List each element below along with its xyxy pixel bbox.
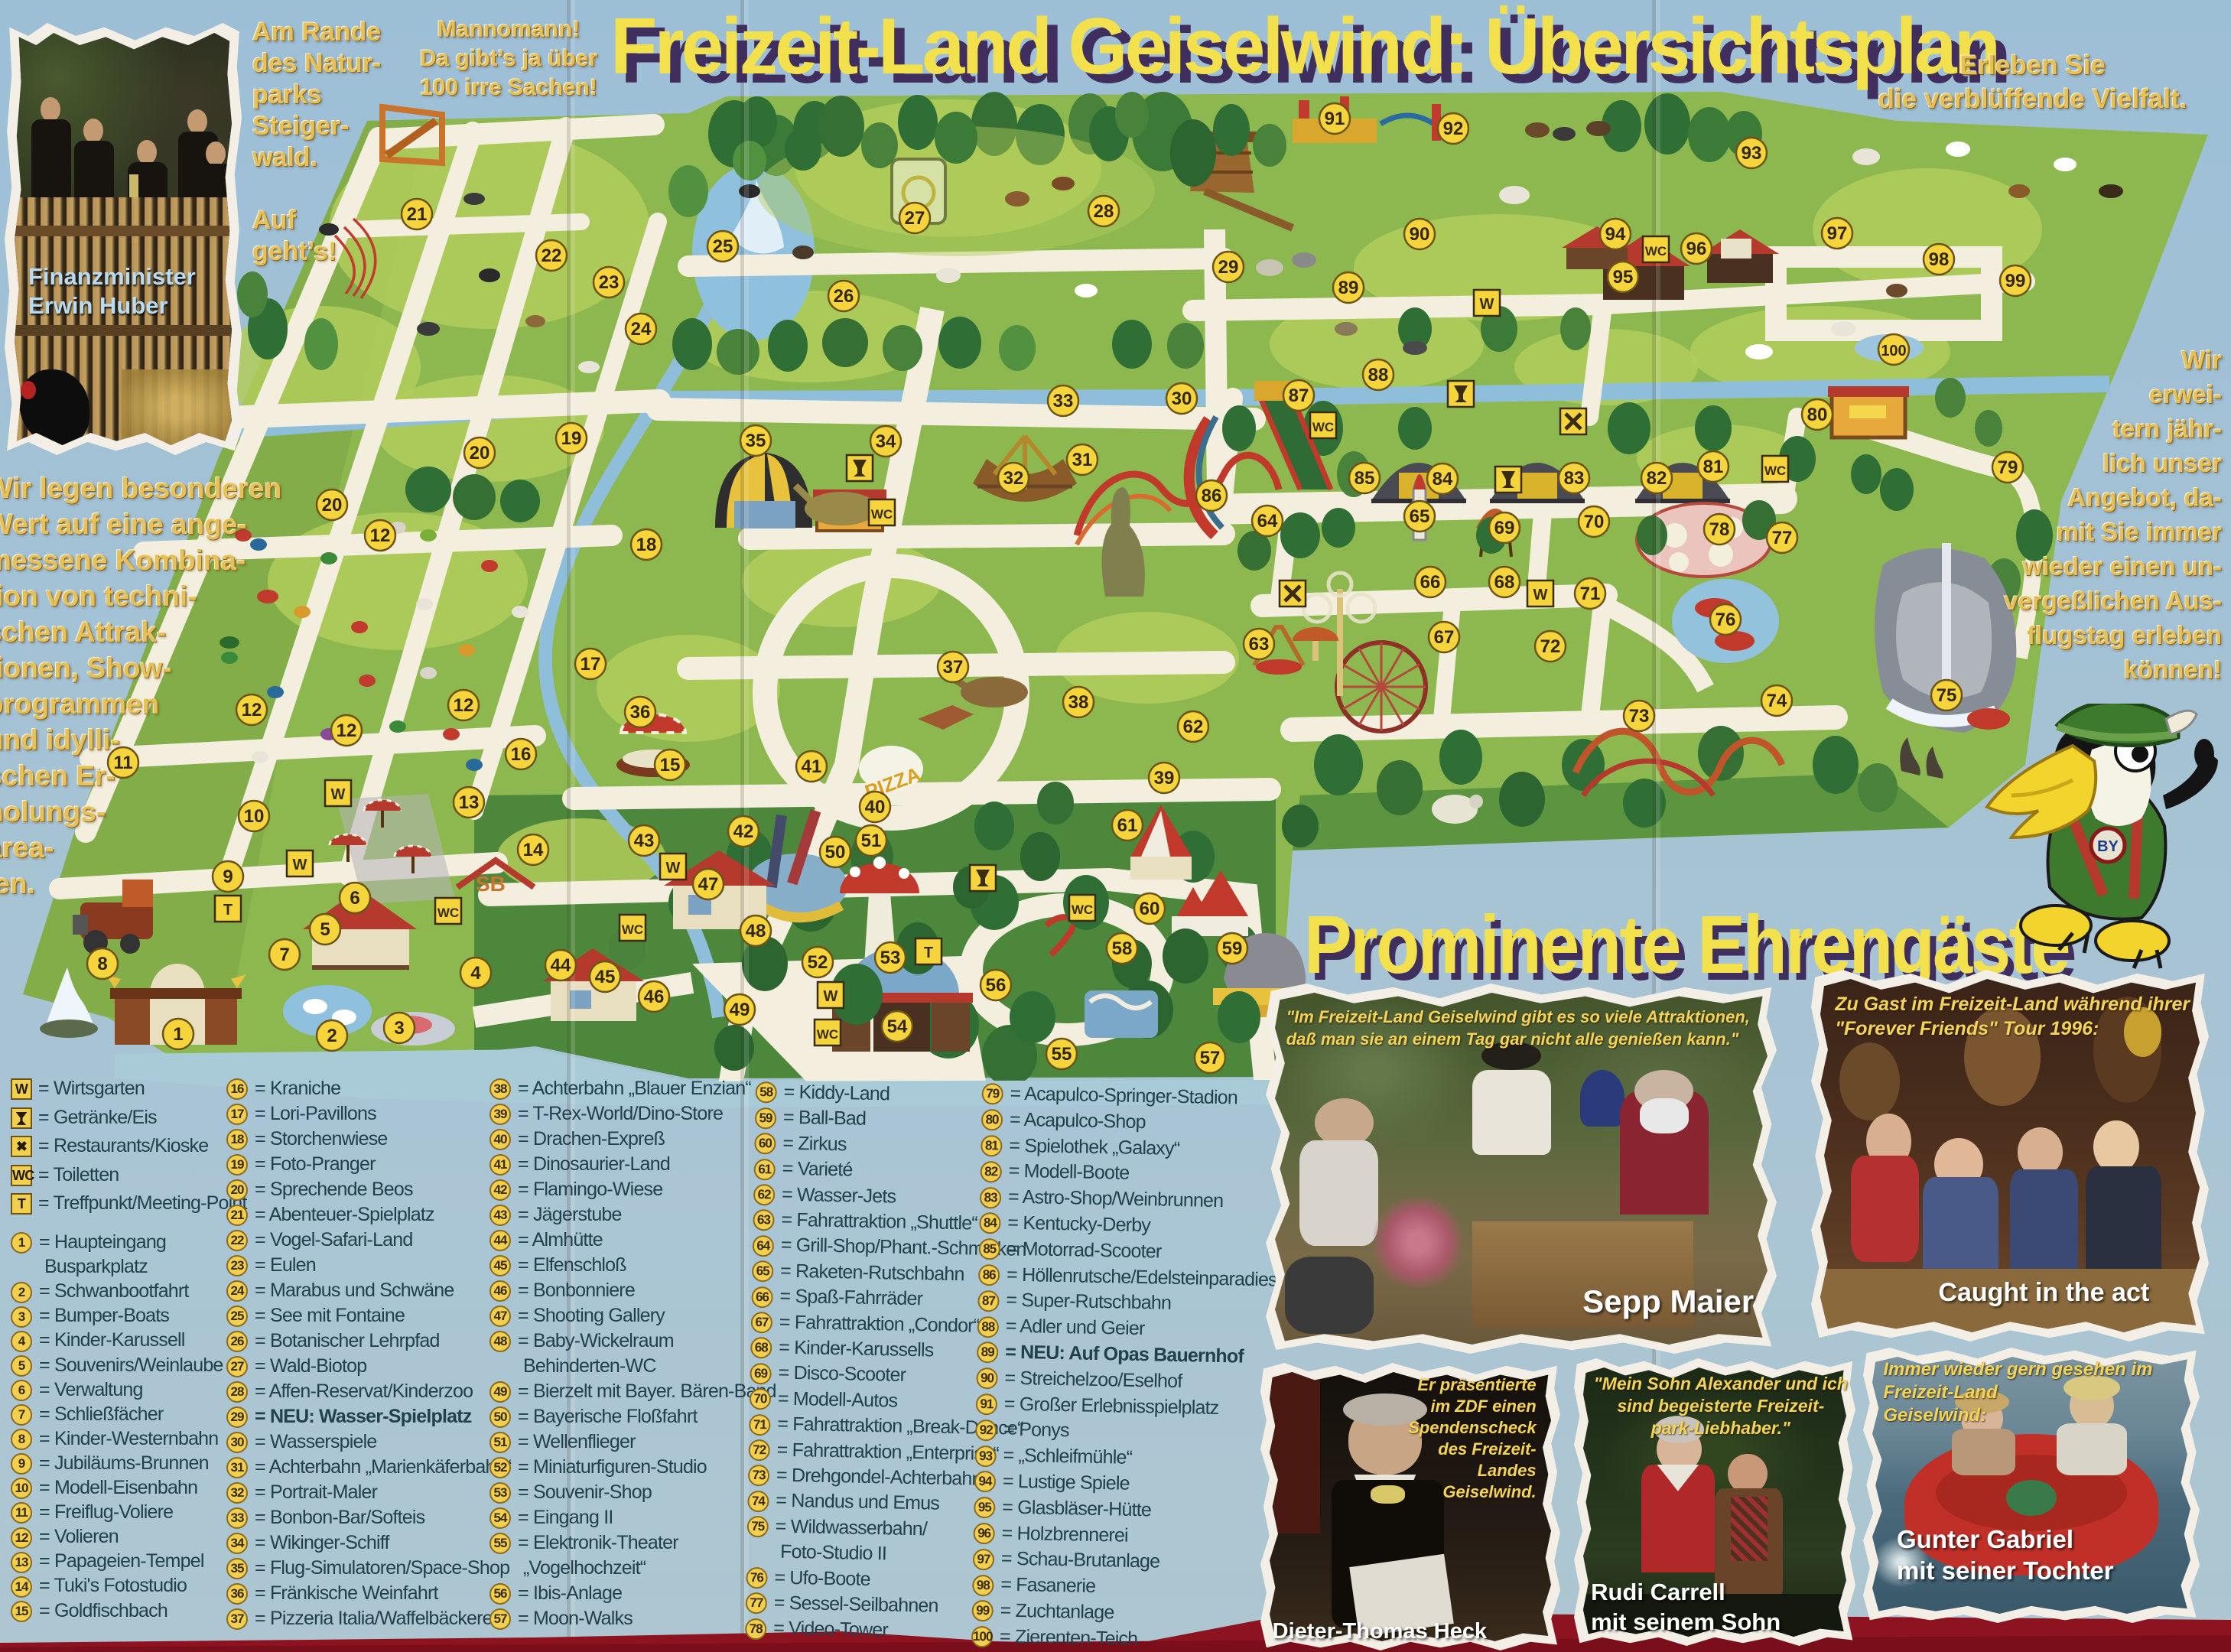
svg-text:41: 41 (802, 756, 822, 777)
svg-text:71: 71 (1580, 584, 1601, 604)
svg-text:95: 95 (1613, 267, 1634, 288)
svg-text:4: 4 (470, 963, 481, 984)
svg-text:54: 54 (887, 1016, 908, 1037)
svg-text:80: 80 (1807, 405, 1828, 425)
svg-text:12: 12 (370, 525, 391, 546)
svg-text:99: 99 (2005, 271, 2026, 291)
svg-text:51: 51 (861, 831, 882, 851)
svg-text:52: 52 (808, 952, 828, 973)
svg-text:20: 20 (322, 495, 343, 515)
svg-text:48: 48 (746, 921, 766, 941)
svg-text:WC: WC (1312, 420, 1334, 434)
svg-text:28: 28 (1094, 201, 1114, 222)
svg-text:WC: WC (1645, 244, 1667, 259)
svg-text:47: 47 (698, 874, 719, 895)
svg-text:69: 69 (1494, 518, 1515, 538)
svg-text:68: 68 (1494, 572, 1515, 593)
svg-text:77: 77 (1772, 528, 1793, 548)
svg-text:92: 92 (1443, 119, 1464, 139)
svg-text:5: 5 (320, 919, 330, 940)
svg-text:87: 87 (1289, 385, 1309, 406)
svg-text:W: W (1480, 296, 1494, 313)
svg-text:81: 81 (1703, 457, 1724, 477)
svg-text:85: 85 (1355, 468, 1375, 489)
svg-text:97: 97 (1827, 223, 1848, 244)
svg-text:62: 62 (1183, 717, 1204, 737)
svg-text:86: 86 (1202, 486, 1222, 506)
svg-text:33: 33 (1053, 391, 1074, 411)
svg-text:94: 94 (1605, 224, 1626, 245)
svg-text:21: 21 (407, 204, 428, 225)
svg-text:89: 89 (1338, 278, 1359, 298)
svg-text:70: 70 (1584, 512, 1605, 532)
svg-text:26: 26 (834, 286, 854, 307)
svg-text:58: 58 (1112, 938, 1133, 959)
svg-text:84: 84 (1433, 469, 1453, 489)
svg-text:61: 61 (1117, 815, 1138, 836)
svg-text:29: 29 (1218, 257, 1239, 278)
svg-text:66: 66 (1420, 572, 1441, 593)
svg-text:6: 6 (350, 888, 359, 909)
svg-text:45: 45 (595, 967, 616, 987)
svg-text:BY: BY (2097, 838, 2119, 855)
svg-text:W: W (824, 988, 838, 1005)
svg-text:39: 39 (1154, 768, 1175, 789)
svg-text:42: 42 (733, 821, 754, 842)
svg-text:1: 1 (173, 1024, 183, 1045)
svg-text:67: 67 (1434, 627, 1455, 648)
svg-text:12: 12 (337, 720, 357, 741)
svg-text:32: 32 (1003, 468, 1024, 489)
svg-text:44: 44 (551, 955, 571, 976)
svg-text:38: 38 (1068, 692, 1089, 713)
svg-text:30: 30 (1172, 389, 1192, 409)
svg-text:35: 35 (746, 431, 766, 451)
svg-text:74: 74 (1767, 691, 1787, 711)
svg-text:T: T (924, 945, 933, 961)
svg-text:W: W (293, 857, 307, 873)
svg-text:40: 40 (865, 797, 886, 818)
svg-text:19: 19 (561, 428, 582, 449)
svg-text:34: 34 (876, 431, 896, 452)
svg-text:8: 8 (97, 954, 107, 974)
svg-text:W: W (1533, 587, 1548, 603)
svg-text:36: 36 (630, 702, 651, 723)
svg-text:63: 63 (1249, 634, 1270, 655)
svg-text:37: 37 (943, 657, 964, 678)
svg-text:43: 43 (634, 831, 655, 851)
svg-text:WC: WC (1072, 902, 1093, 917)
svg-text:12: 12 (454, 695, 474, 716)
svg-text:93: 93 (1742, 143, 1762, 164)
svg-text:53: 53 (880, 948, 901, 968)
svg-text:WC: WC (871, 507, 893, 522)
svg-text:100: 100 (1881, 343, 1906, 359)
svg-text:WC: WC (437, 906, 459, 920)
svg-text:23: 23 (599, 272, 620, 293)
svg-text:W: W (666, 860, 681, 876)
svg-text:24: 24 (631, 319, 652, 340)
svg-text:88: 88 (1368, 365, 1389, 385)
svg-text:15: 15 (660, 755, 681, 776)
svg-text:22: 22 (541, 246, 562, 266)
svg-text:73: 73 (1629, 706, 1650, 727)
svg-text:64: 64 (1257, 511, 1278, 532)
svg-text:91: 91 (1325, 109, 1345, 129)
svg-text:16: 16 (511, 744, 532, 765)
svg-text:59: 59 (1222, 938, 1243, 959)
svg-text:55: 55 (1052, 1044, 1072, 1065)
svg-text:WC: WC (817, 1027, 838, 1042)
svg-text:98: 98 (1929, 249, 1950, 270)
svg-text:31: 31 (1072, 450, 1093, 470)
svg-text:78: 78 (1709, 519, 1730, 540)
svg-text:76: 76 (1716, 610, 1736, 630)
svg-text:82: 82 (1647, 468, 1667, 489)
svg-text:96: 96 (1686, 239, 1707, 259)
svg-text:75: 75 (1937, 685, 1957, 706)
svg-text:56: 56 (986, 975, 1007, 996)
svg-text:7: 7 (279, 945, 289, 965)
svg-text:W: W (331, 786, 346, 803)
svg-text:13: 13 (459, 792, 480, 813)
svg-text:65: 65 (1410, 506, 1430, 527)
svg-text:25: 25 (713, 236, 733, 257)
svg-text:18: 18 (636, 535, 657, 555)
svg-text:90: 90 (1410, 224, 1430, 245)
svg-text:46: 46 (644, 987, 665, 1007)
svg-text:2: 2 (327, 1026, 337, 1046)
svg-text:14: 14 (523, 840, 544, 860)
svg-text:27: 27 (905, 208, 925, 229)
svg-text:SB: SB (476, 872, 506, 896)
svg-text:17: 17 (581, 654, 601, 675)
svg-text:WC: WC (622, 922, 643, 937)
svg-text:72: 72 (1540, 636, 1561, 657)
svg-text:20: 20 (470, 443, 490, 463)
svg-text:50: 50 (825, 842, 846, 863)
svg-text:83: 83 (1564, 468, 1585, 489)
svg-text:57: 57 (1200, 1048, 1221, 1068)
svg-text:3: 3 (394, 1018, 404, 1039)
svg-text:T: T (223, 902, 233, 919)
svg-text:49: 49 (730, 1000, 750, 1020)
svg-text:WC: WC (1764, 463, 1786, 478)
svg-text:60: 60 (1140, 899, 1160, 919)
